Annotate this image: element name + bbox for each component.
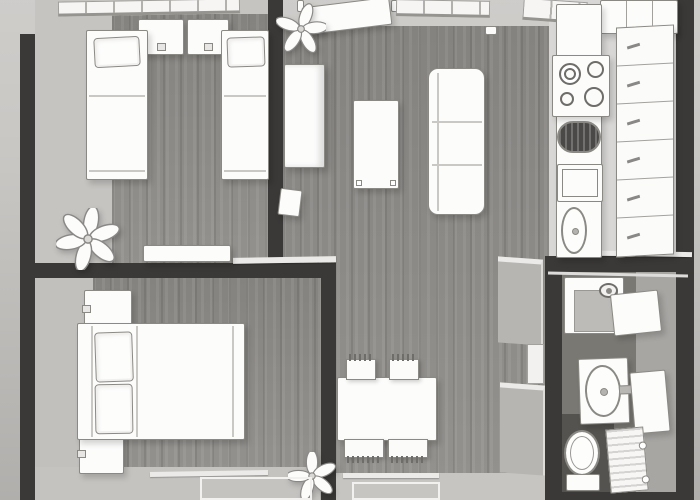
shower-head-center bbox=[606, 288, 612, 294]
duvet-edge bbox=[136, 326, 138, 437]
drawer bbox=[617, 26, 673, 67]
bed-foot-line bbox=[224, 170, 266, 172]
table-leg bbox=[390, 180, 396, 186]
burner bbox=[584, 87, 604, 107]
dresser-knob bbox=[204, 43, 213, 51]
drawer bbox=[617, 102, 673, 143]
sofa-armrest-line bbox=[437, 73, 439, 211]
sideboard bbox=[143, 245, 231, 262]
pillow bbox=[93, 36, 141, 68]
nightstand-knob bbox=[77, 450, 86, 458]
dining-chair bbox=[389, 359, 419, 380]
outer-wall-right bbox=[676, 0, 694, 500]
dresser-knob bbox=[157, 43, 166, 51]
toilet-tank bbox=[566, 474, 600, 491]
drain bbox=[572, 228, 579, 235]
drawer bbox=[617, 140, 673, 181]
headboard-line bbox=[91, 326, 93, 437]
kitchen-sink-oval bbox=[561, 207, 587, 254]
dining-chair bbox=[344, 439, 384, 458]
rug bbox=[200, 477, 312, 500]
wall-bathroom-left bbox=[545, 256, 562, 500]
pillow bbox=[94, 331, 134, 382]
burner bbox=[559, 63, 581, 85]
burner bbox=[587, 61, 604, 78]
wall-face-panel-lower bbox=[500, 382, 545, 475]
drain bbox=[600, 388, 608, 396]
dining-chair bbox=[388, 439, 428, 458]
washing-machine bbox=[610, 290, 662, 337]
tall-cabinet bbox=[284, 64, 325, 168]
drawer bbox=[617, 216, 673, 257]
wall-bathroom-top bbox=[545, 256, 694, 272]
single-bed-left bbox=[86, 30, 148, 180]
kitchen-sink-basin-dark bbox=[557, 121, 601, 153]
blanket-seam bbox=[224, 95, 266, 97]
drawer bbox=[617, 178, 673, 219]
mirror-cabinet bbox=[629, 370, 670, 435]
pillow bbox=[226, 36, 265, 67]
drawer bbox=[617, 64, 673, 105]
toilet-bowl bbox=[564, 430, 600, 476]
dining-table bbox=[337, 377, 437, 441]
bed-foot-line bbox=[232, 326, 234, 437]
single-bed-right bbox=[221, 30, 269, 180]
bathroom-door-frame bbox=[527, 344, 544, 384]
radiator bbox=[605, 426, 648, 493]
oven bbox=[557, 164, 603, 202]
floor-plan bbox=[0, 0, 700, 500]
blanket-seam bbox=[89, 95, 145, 97]
plant-icon bbox=[56, 208, 120, 270]
bed-foot-line bbox=[89, 170, 145, 172]
table-leg bbox=[356, 180, 362, 186]
nightstand bbox=[84, 290, 132, 327]
sofa-seam bbox=[432, 121, 482, 123]
pillow bbox=[95, 384, 134, 435]
small-cabinet bbox=[277, 188, 302, 217]
cooktop bbox=[552, 55, 610, 117]
window bbox=[396, 0, 490, 18]
kitchen-drawer-column bbox=[616, 24, 674, 257]
sofa bbox=[428, 68, 485, 215]
nightstand-knob bbox=[82, 305, 91, 313]
light-switch bbox=[485, 26, 497, 35]
coffee-table bbox=[353, 100, 399, 189]
rug bbox=[352, 482, 440, 500]
wall-bathroom-bottom bbox=[545, 492, 694, 500]
burner bbox=[560, 92, 574, 106]
sink-basin bbox=[584, 364, 622, 417]
plant-icon bbox=[276, 0, 326, 58]
baseboard-trim bbox=[343, 473, 439, 478]
sink-vanity bbox=[578, 357, 630, 425]
wall-face-panel-upper bbox=[498, 256, 543, 345]
double-bed bbox=[77, 323, 245, 440]
dining-chair bbox=[346, 359, 376, 380]
sofa-seam bbox=[432, 164, 482, 166]
